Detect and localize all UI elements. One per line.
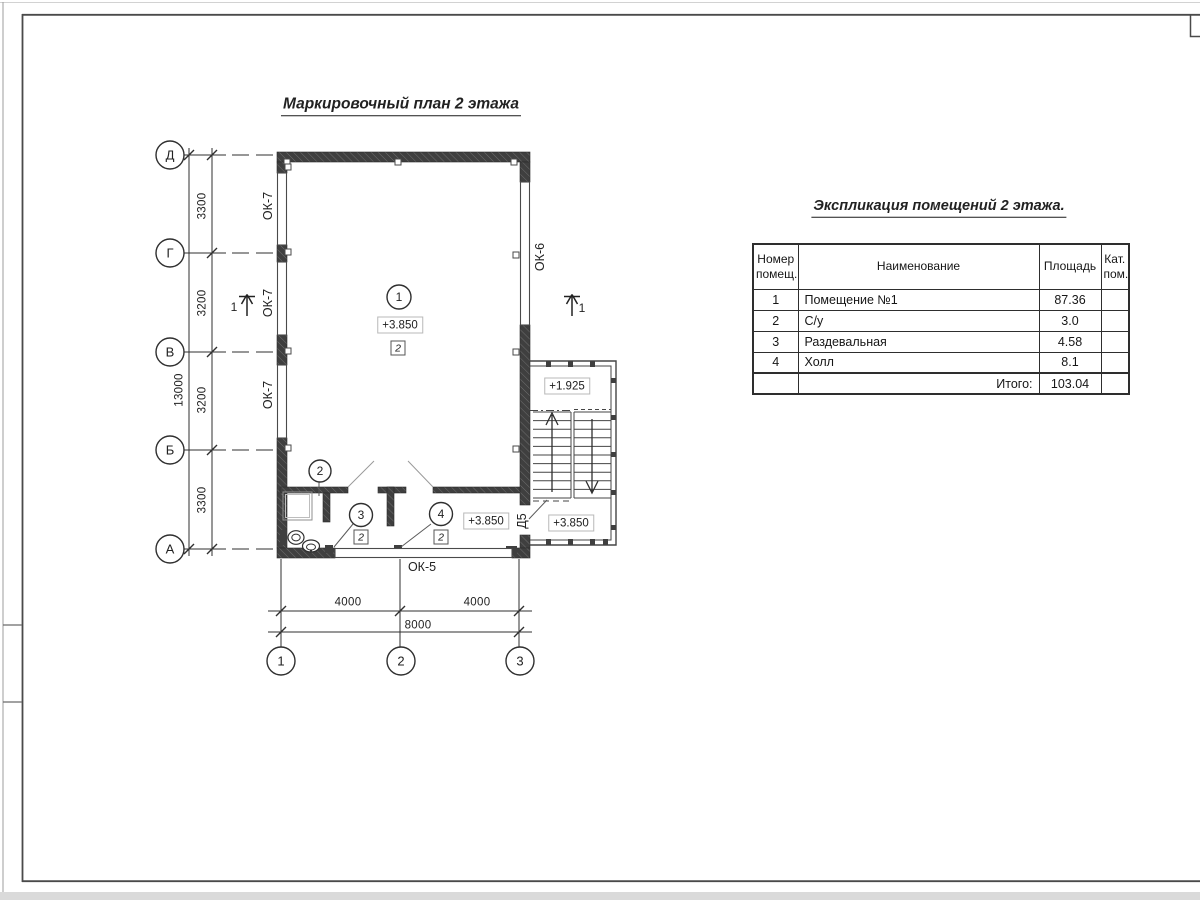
elevation-mark: +3.850: [548, 515, 594, 532]
cell-name: Помещение №1: [798, 289, 1039, 310]
cell-empty: [1101, 373, 1129, 394]
table-total-row: Итого: 103.04: [753, 373, 1129, 394]
section-number: 1: [579, 302, 586, 314]
grid-col-label: 3: [516, 655, 523, 668]
dim-label: 3200: [197, 290, 209, 317]
dim-label: 4000: [464, 597, 491, 609]
room-number: 1: [396, 291, 403, 303]
type-mark-box: 2: [391, 341, 406, 356]
cell-number: 2: [753, 310, 798, 331]
door-swings: [348, 461, 433, 487]
section-number: 1: [231, 301, 238, 313]
col-header-number: Номер помещ.: [753, 244, 798, 289]
explication-table: Номер помещ. Наименование Площадь Кат. п…: [752, 243, 1130, 395]
dim-label: 3300: [197, 487, 209, 514]
elevation-mark: +3.850: [377, 317, 423, 334]
drawing-sheet: Маркировочный план 2 этажа Экспликация п…: [0, 0, 1200, 900]
cell-name: С/у: [798, 310, 1039, 331]
grid-col-label: 2: [397, 655, 404, 668]
shower-tray-icon: [283, 492, 312, 520]
dim-label: 3200: [197, 387, 209, 414]
col-header-cat: Кат. пом.: [1101, 244, 1129, 289]
total-label: Итого:: [798, 373, 1039, 394]
table-row: 4 Холл 8.1: [753, 352, 1129, 373]
elevation-mark: +3.850: [463, 513, 509, 530]
cell-empty: [753, 373, 798, 394]
room-number: 3: [358, 509, 365, 521]
table-row: 3 Раздевальная 4.58: [753, 331, 1129, 352]
table-row: 2 С/у 3.0: [753, 310, 1129, 331]
table-title: Экспликация помещений 2 этажа.: [811, 199, 1066, 218]
cell-cat: [1101, 289, 1129, 310]
dim-label: 3300: [197, 193, 209, 220]
window-label-ok7: ОК-7: [262, 192, 275, 220]
cell-number: 4: [753, 352, 798, 373]
window-label-ok6: ОК-6: [534, 243, 547, 271]
grid-row-label: А: [166, 543, 175, 556]
table-row: 1 Помещение №1 87.36: [753, 289, 1129, 310]
cell-number: 3: [753, 331, 798, 352]
dim-label: 4000: [335, 597, 362, 609]
cell-area: 87.36: [1039, 289, 1101, 310]
cell-number: 1: [753, 289, 798, 310]
cell-cat: [1101, 310, 1129, 331]
col-header-area: Площадь: [1039, 244, 1101, 289]
floor-plan-drawing: [0, 0, 1200, 900]
room-number: 2: [317, 465, 324, 477]
room-number: 4: [438, 508, 445, 520]
dim-total-label: 13000: [174, 373, 186, 406]
windows: [278, 173, 530, 558]
cell-cat: [1101, 352, 1129, 373]
door-label-d5: Д5: [516, 513, 529, 528]
col-header-name: Наименование: [798, 244, 1039, 289]
cell-name: Раздевальная: [798, 331, 1039, 352]
cell-area: 8.1: [1039, 352, 1101, 373]
sink-icon: [303, 540, 320, 552]
window-label-ok7: ОК-7: [262, 381, 275, 409]
grid-row-label: Б: [166, 444, 175, 457]
toilet-icon: [280, 530, 304, 545]
stairs: [530, 410, 611, 502]
cell-name: Холл: [798, 352, 1039, 373]
grid-row-label: В: [166, 346, 175, 359]
window-label-ok7: ОК-7: [262, 289, 275, 317]
grid-col-label: 1: [277, 655, 284, 668]
cell-cat: [1101, 331, 1129, 352]
type-mark-box: 2: [434, 530, 449, 545]
plan-title: Маркировочный план 2 этажа: [281, 96, 521, 116]
cell-area: 4.58: [1039, 331, 1101, 352]
grid-row-label: Д: [166, 149, 175, 162]
grid-row-label: Г: [166, 247, 173, 260]
total-value: 103.04: [1039, 373, 1101, 394]
elevation-mark: +1.925: [544, 378, 590, 395]
cell-area: 3.0: [1039, 310, 1101, 331]
dim-total-label: 8000: [405, 620, 432, 632]
type-mark-box: 2: [354, 530, 369, 545]
window-label-ok5: ОК-5: [408, 561, 436, 574]
